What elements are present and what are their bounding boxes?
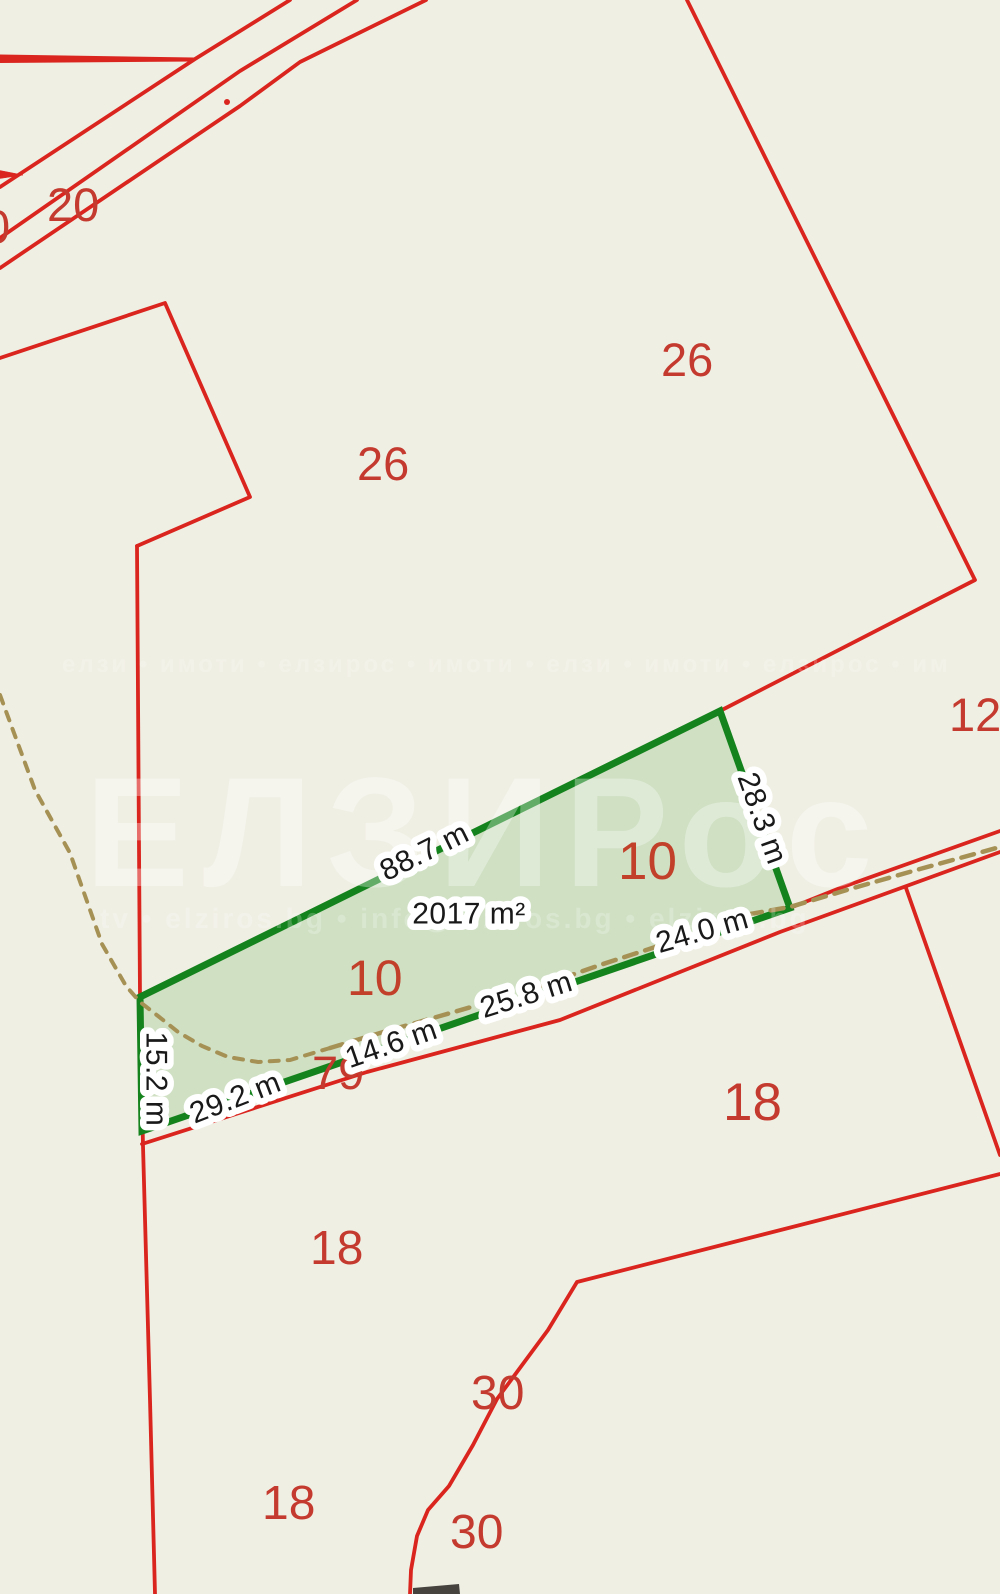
svg-text:2017 m²: 2017 m² bbox=[412, 898, 526, 931]
svg-text:10: 10 bbox=[618, 832, 677, 891]
svg-text:20: 20 bbox=[47, 178, 99, 231]
svg-text:12: 12 bbox=[949, 688, 1000, 741]
svg-text:26: 26 bbox=[357, 437, 409, 490]
svg-text:15.2 m: 15.2 m bbox=[140, 1032, 173, 1127]
svg-text:елзи • имоти • елзирос •: елзи • имоти • елзирос • имоти • елзи • … bbox=[62, 651, 951, 678]
svg-text:10: 10 bbox=[347, 950, 403, 1006]
svg-text:26: 26 bbox=[661, 333, 713, 386]
svg-text:0: 0 bbox=[0, 200, 10, 253]
svg-text:18: 18 bbox=[310, 1222, 363, 1275]
svg-text:18: 18 bbox=[723, 1073, 782, 1132]
svg-text:30: 30 bbox=[471, 1367, 524, 1420]
svg-text:18: 18 bbox=[262, 1477, 315, 1530]
svg-text:30: 30 bbox=[450, 1506, 503, 1559]
